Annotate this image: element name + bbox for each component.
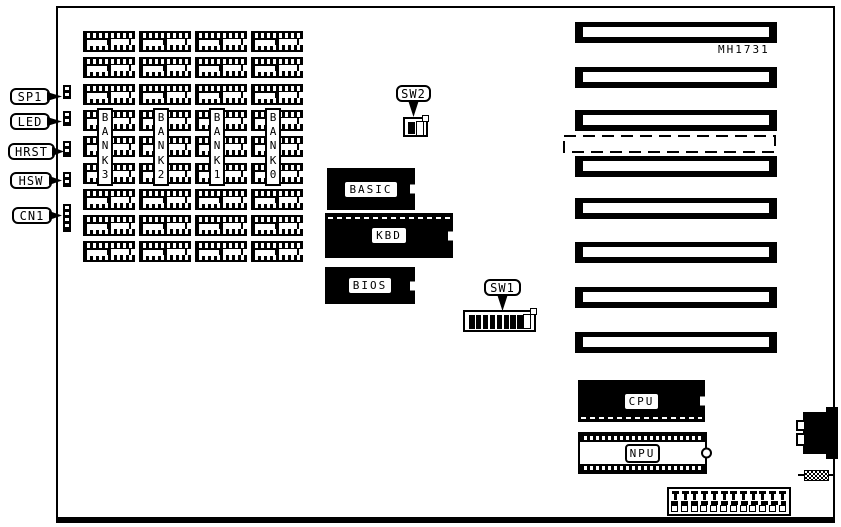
expansion-slot — [575, 242, 777, 263]
power-connector-socket — [730, 505, 737, 512]
npu-pin-band-top — [580, 434, 705, 442]
power-connector-socket — [759, 505, 766, 512]
power-connector-pin — [682, 491, 689, 500]
expansion-slots — [0, 0, 841, 527]
power-connector-pin — [691, 491, 698, 500]
power-connector-socket — [671, 505, 678, 512]
npu-notch-icon — [701, 448, 712, 459]
expansion-slot — [575, 332, 777, 353]
power-connector-pin — [750, 491, 757, 500]
power-connector-socket — [749, 505, 756, 512]
power-connector-pin — [759, 491, 766, 500]
power-connector — [667, 487, 791, 516]
expansion-slot — [575, 110, 777, 131]
power-connector-pin — [721, 491, 728, 500]
npu-pin-band-bottom — [580, 464, 705, 472]
power-connector-pin — [730, 491, 737, 500]
expansion-slot-contact — [583, 72, 769, 82]
cpu-chip: CPU — [578, 380, 705, 422]
power-connector-pin — [711, 491, 718, 500]
expansion-slot — [575, 22, 777, 43]
power-connector-socket — [740, 505, 747, 512]
expansion-slot-contact — [583, 247, 769, 257]
npu-socket: NPU — [578, 432, 707, 474]
expansion-slot-contact — [583, 115, 769, 125]
crystal-component — [804, 470, 829, 481]
crystal-lead — [828, 474, 835, 476]
power-connector-pin — [701, 491, 708, 500]
keyboard-connector-pin — [796, 433, 806, 446]
expansion-slot — [575, 198, 777, 219]
power-connector-socket — [720, 505, 727, 512]
expansion-slot-contact — [583, 27, 769, 37]
expansion-slot-contact — [583, 161, 769, 171]
power-connector-socket — [681, 505, 688, 512]
cpu-chip-dashline — [581, 417, 702, 419]
power-connector-socket — [700, 505, 707, 512]
cpu-chip-notch — [700, 397, 705, 406]
expansion-slot-contact — [583, 292, 769, 302]
expansion-slot — [575, 156, 777, 177]
power-connector-socket — [710, 505, 717, 512]
expansion-slot-contact — [583, 203, 769, 213]
expansion-slot-contact — [583, 337, 769, 347]
motherboard-diagram: SP1 LED HRST HSW CN1 BANK3BANK2BANK1BANK… — [0, 0, 841, 527]
expansion-slot — [575, 287, 777, 308]
power-connector-socket — [779, 505, 786, 512]
model-number: MH1731 — [718, 44, 770, 55]
keyboard-connector-pin — [796, 420, 806, 431]
power-connector-socket — [691, 505, 698, 512]
npu-chip-label: NPU — [625, 444, 661, 463]
power-connector-pin — [672, 491, 679, 500]
power-connector-pin — [779, 491, 786, 500]
keyboard-connector-tab — [826, 407, 838, 459]
power-connector-pin — [740, 491, 747, 500]
power-connector-socket — [769, 505, 776, 512]
cpu-chip-label: CPU — [625, 394, 659, 409]
expansion-slot — [575, 67, 777, 88]
dashed-slot — [563, 135, 776, 153]
power-connector-pin — [769, 491, 776, 500]
